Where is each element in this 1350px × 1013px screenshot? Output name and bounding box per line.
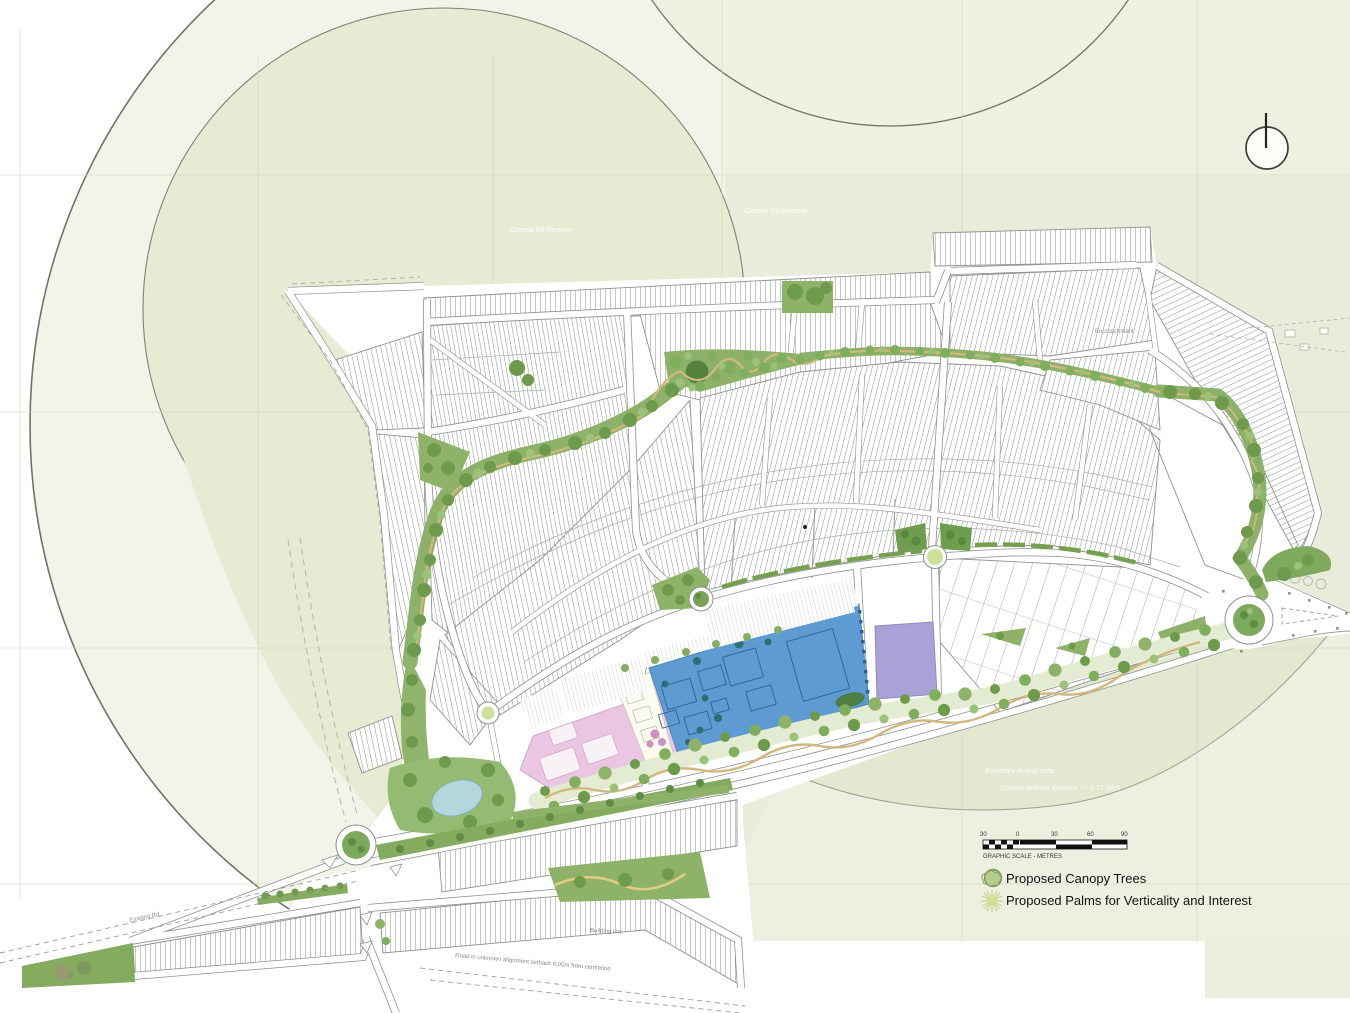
svg-text:90: 90	[1121, 832, 1128, 838]
svg-text:Coastal Rd Reserve: Coastal Rd Reserve	[510, 227, 573, 234]
svg-text:Coastal setback distance +/- 0: Coastal setback distance +/- 0.77 Ha-s	[1000, 785, 1121, 792]
svg-text:GRAPHIC SCALE - METRES: GRAPHIC SCALE - METRES	[983, 854, 1062, 860]
svg-text:Coastal Rd Reserve: Coastal Rd Reserve	[745, 208, 808, 215]
svg-text:60: 60	[1087, 832, 1094, 838]
svg-text:Boundary of land area: Boundary of land area	[985, 768, 1054, 775]
svg-text:Proposed Canopy Trees: Proposed Canopy Trees	[1006, 871, 1147, 886]
svg-text:30: 30	[1051, 832, 1058, 838]
svg-text:30: 30	[980, 832, 987, 838]
svg-text:Encroachment: Encroachment	[1095, 329, 1134, 335]
svg-text:Proposed Palms for Verticality: Proposed Palms for Verticality and Inter…	[1006, 893, 1252, 908]
